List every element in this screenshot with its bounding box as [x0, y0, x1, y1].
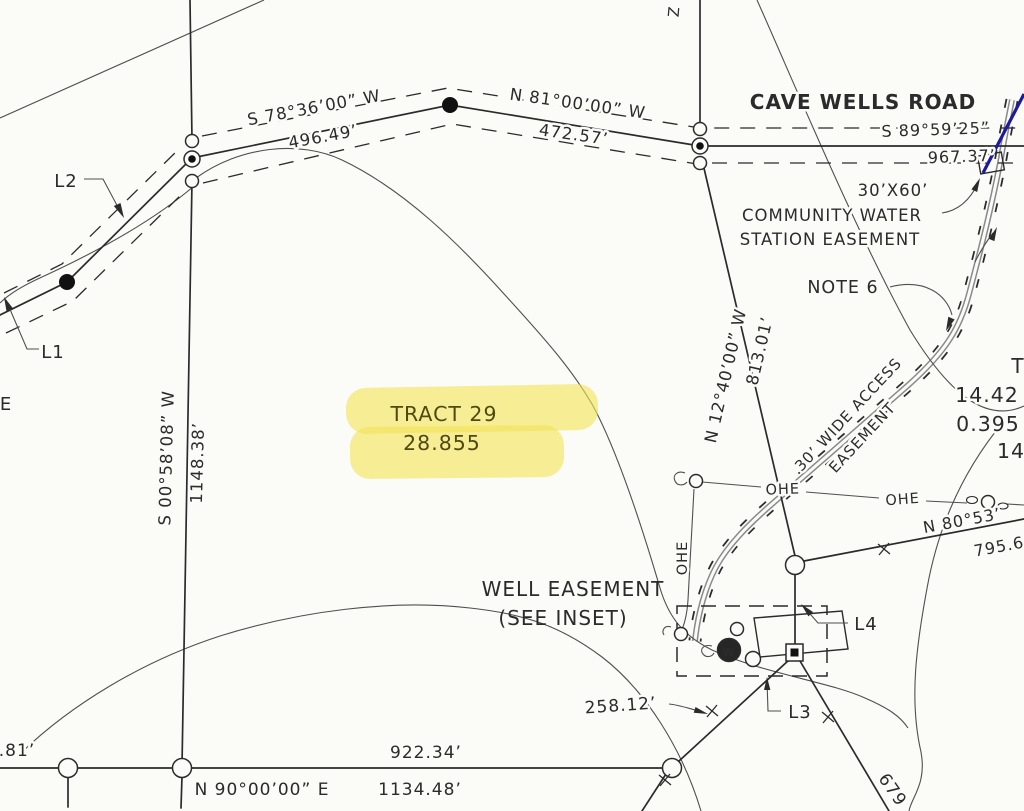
edge-partial-val3: 14	[997, 439, 1024, 463]
edge-partial-left-letter: E	[0, 394, 12, 415]
found-pin-dot	[59, 274, 75, 290]
water-station-size: 30’X60’	[858, 181, 929, 200]
corner-circle	[59, 759, 78, 778]
monument-circle	[694, 157, 707, 170]
west-bearing: S 00°58’08” W	[155, 390, 178, 526]
ohe-label: OHE	[885, 491, 921, 509]
water-station-line1: COMMUNITY WATER	[742, 206, 922, 225]
line-ref-l2: L2	[54, 171, 77, 192]
south-bearing: N 90°00’00” E	[195, 780, 330, 800]
tract-name-label: TRACT 29	[389, 402, 497, 426]
line-ref-l3: L3	[788, 702, 811, 723]
road-bearing-label: S 89°59’25”	[881, 118, 990, 141]
edge-partial-top-letter: Z	[664, 6, 683, 19]
note6-label: NOTE 6	[807, 278, 878, 298]
corner-circle	[663, 759, 682, 778]
well-easement-line2: (SEE INSET)	[498, 606, 627, 630]
corner-circle	[786, 556, 805, 575]
west-distance: 1148.38’	[187, 422, 208, 504]
monument-circle	[186, 175, 199, 188]
monument-circle	[694, 123, 707, 136]
edge-partial-val1: 14.42	[955, 383, 1019, 407]
square-monument	[786, 644, 803, 661]
road-name-label: CAVE WELLS ROAD	[750, 90, 976, 114]
road-distance-label: 967.37’	[927, 146, 996, 167]
south-distance: 1134.48’	[378, 780, 462, 800]
south-left-dim: 922.34’	[390, 743, 462, 763]
monument-dot	[696, 142, 704, 150]
edge-partial-val2: 0.395	[956, 412, 1020, 436]
corner-circle	[173, 759, 192, 778]
line-ref-l1: L1	[41, 342, 64, 363]
tract-acreage-label: 28.855	[403, 431, 481, 455]
monument-circle	[186, 135, 199, 148]
survey-plat-drawing: CAVE WELLS ROAD S 89°59’25” 967.37’ S 78…	[0, 0, 1024, 811]
ohe-label: OHE	[675, 541, 691, 575]
inset-point-circle	[731, 623, 744, 636]
edge-partial-title: T	[1010, 354, 1024, 378]
inset-point-circle	[746, 652, 761, 667]
ohe-label: OHE	[765, 481, 800, 498]
well-symbol-letter: W	[722, 646, 735, 659]
line-ref-l4: L4	[854, 614, 877, 635]
south-cut-dim: .81’	[0, 741, 35, 761]
monument-dot	[188, 155, 196, 163]
survey-plat-page: CAVE WELLS ROAD S 89°59’25” 967.37’ S 78…	[0, 0, 1024, 811]
water-station-line2: STATION EASEMENT	[740, 230, 921, 249]
well-easement-line1: WELL EASEMENT	[482, 577, 665, 601]
found-pin-dot	[442, 97, 458, 113]
